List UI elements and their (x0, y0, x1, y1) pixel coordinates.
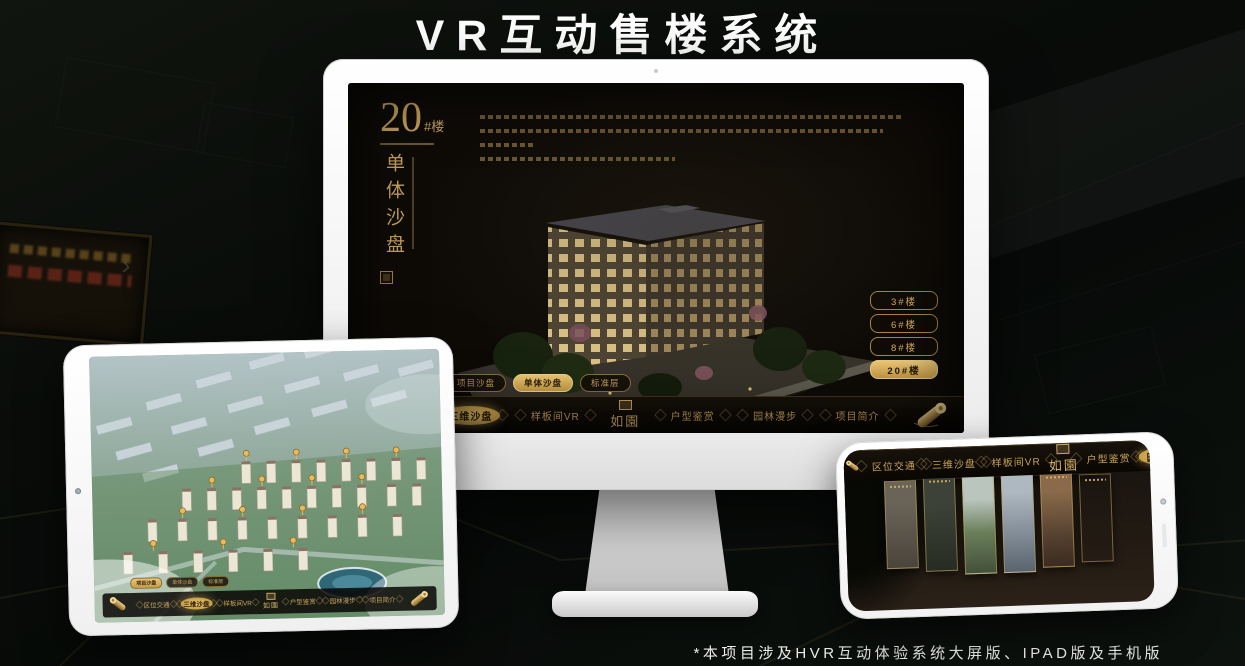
seal-stamp-icon (380, 271, 393, 284)
scroll-icon[interactable] (106, 595, 132, 616)
nav-garden-walk[interactable]: 园林漫步 (745, 406, 805, 425)
monitor-camera-icon (654, 69, 658, 73)
title-vertical-line (412, 157, 414, 249)
nav-floorplan-view[interactable]: 户型鉴赏 (287, 595, 319, 608)
title-divider (380, 143, 434, 145)
gallery-card[interactable] (1040, 471, 1075, 568)
tablet-device: 项目沙盘 单体沙盘 标准层 区位交通 三维沙盘 样板间VR 如園 (63, 337, 460, 637)
scroll-icon[interactable] (910, 399, 954, 431)
brand-logo: 如園 (610, 400, 640, 430)
building-number-unit: #楼 (424, 119, 444, 134)
phone-device: 区位交通 三维沙盘 样板间VR 如園 户型鉴赏 园林漫步 项目简介 (835, 431, 1179, 620)
nav-project-intro[interactable]: 项目简介 (366, 593, 398, 606)
tab-project-sandtable[interactable]: 项目沙盘 (446, 374, 506, 392)
floor-button-group: 3#楼 6#楼 8#楼 20#楼 (870, 291, 938, 379)
tablet-camera-icon (75, 488, 81, 494)
gallery-card[interactable] (962, 469, 998, 574)
floor-button-8[interactable]: 8#楼 (870, 337, 938, 356)
gallery-card[interactable] (1079, 473, 1114, 562)
phone-speaker-slot (1162, 523, 1167, 547)
nav-location-traffic[interactable]: 区位交通 (140, 598, 172, 611)
gallery-card[interactable] (923, 475, 958, 572)
nav-model-room-vr[interactable]: 样板间VR (523, 406, 588, 425)
phone-camera-icon (1160, 499, 1166, 505)
tablet-tab-standard-floor[interactable]: 标准层 (202, 576, 229, 588)
nav-model-room-vr[interactable]: 样板间VR (220, 596, 255, 609)
nav-3d-sandtable-active[interactable]: 三维沙盘 (180, 597, 212, 610)
tablet-tab-project-sandtable-active[interactable]: 项目沙盘 (130, 577, 162, 589)
nav-garden-walk[interactable]: 园林漫步 (327, 594, 359, 607)
nav-model-room-vr[interactable]: 样板间VR (983, 450, 1049, 471)
gallery-card-strip (883, 461, 1114, 581)
floor-button-6[interactable]: 6#楼 (870, 314, 938, 333)
footnote-text: *本项目涉及HVR互动体验系统大屏版、IPAD版及手机版 (694, 642, 1163, 663)
brand-seal-icon (1057, 444, 1070, 454)
tablet-tab-single-sandtable[interactable]: 单体沙盘 (166, 576, 198, 588)
tablet-view-tab-group: 项目沙盘 单体沙盘 标准层 (130, 576, 229, 589)
gallery-card[interactable] (1001, 468, 1037, 573)
tab-standard-floor[interactable]: 标准层 (580, 374, 631, 392)
floor-button-3[interactable]: 3#楼 (870, 291, 938, 310)
view-tab-group: 项目沙盘 单体沙盘 标准层 (446, 374, 631, 392)
nav-floorplan-view[interactable]: 户型鉴赏 (663, 406, 723, 425)
building-mode-vertical-title: 单体沙盘 (380, 153, 407, 263)
tablet-screen: 项目沙盘 单体沙盘 标准层 区位交通 三维沙盘 样板间VR 如園 (89, 349, 445, 623)
phone-screen: 区位交通 三维沙盘 样板间VR 如園 户型鉴赏 园林漫步 项目简介 (843, 440, 1154, 612)
brand-seal-icon (619, 400, 632, 410)
brand-logo: 如園 (263, 593, 279, 611)
monitor-base (552, 591, 758, 617)
floor-button-20-active[interactable]: 20#楼 (870, 360, 938, 379)
page-title: VR互动售楼系统 (0, 1, 1245, 63)
gallery-card[interactable] (884, 480, 919, 569)
scroll-icon[interactable] (406, 588, 432, 609)
building-number: 20 (380, 95, 422, 141)
award-plaque (0, 221, 153, 346)
monitor-stand (577, 489, 737, 595)
nav-project-intro[interactable]: 项目简介 (828, 406, 888, 425)
brand-seal-icon (266, 593, 275, 600)
stage: › VR互动售楼系统 20#楼 单体沙盘 (0, 0, 1245, 666)
tab-single-sandtable-active[interactable]: 单体沙盘 (513, 374, 573, 392)
